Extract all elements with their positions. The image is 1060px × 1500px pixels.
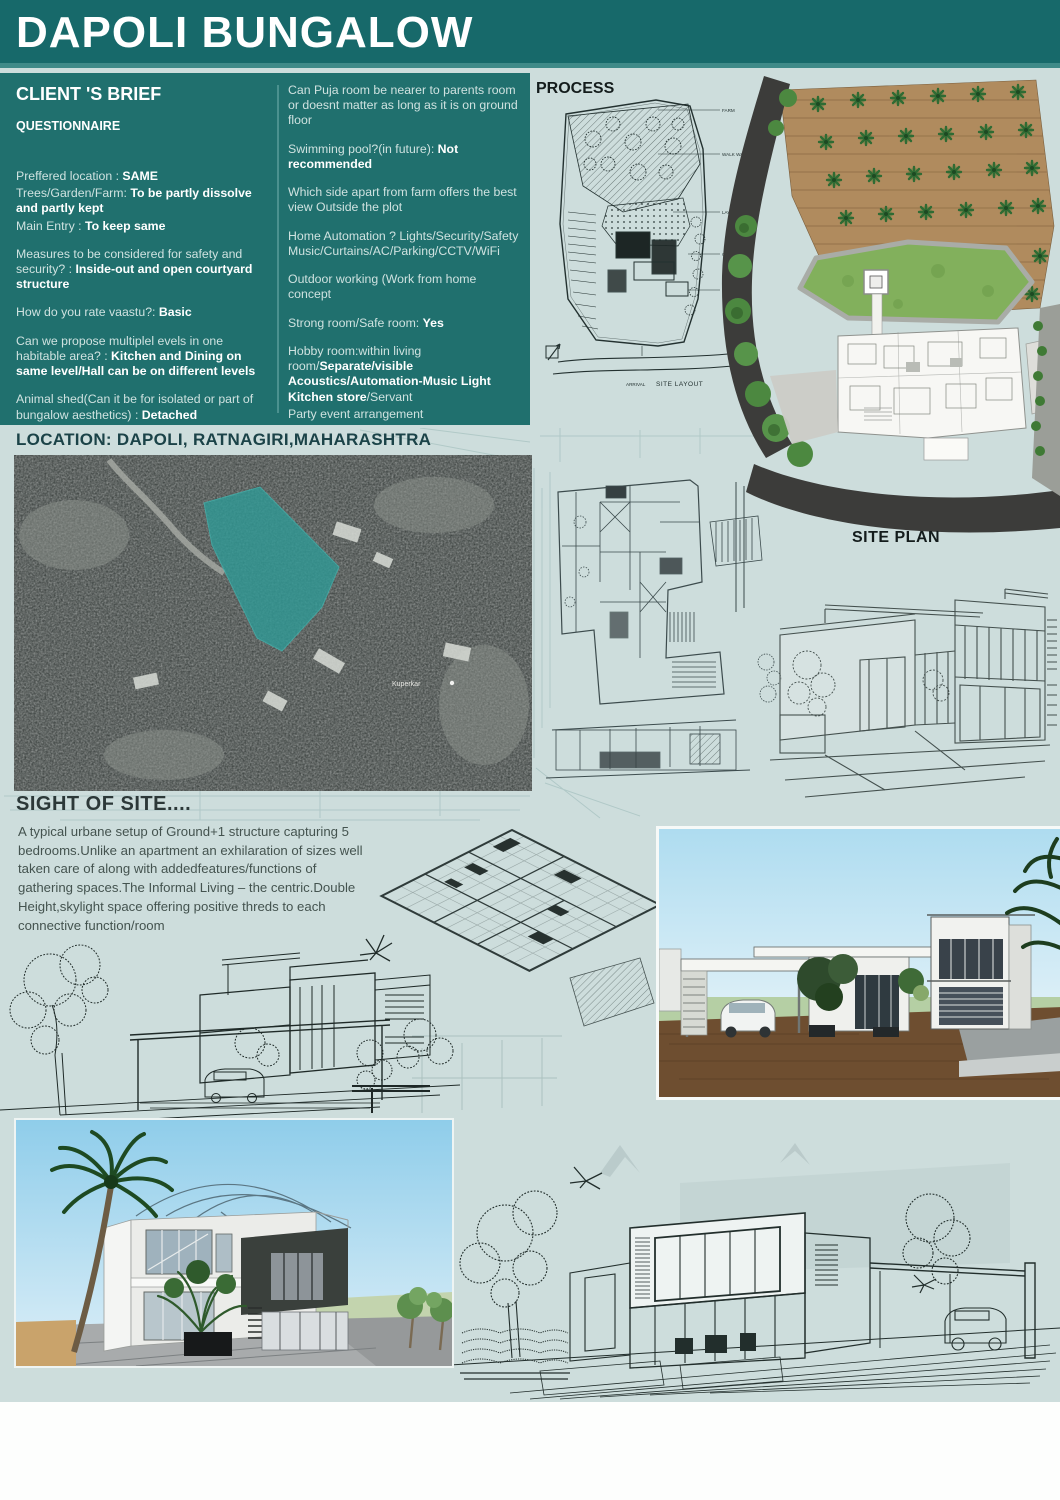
brief-item: Outdoor working (Work from home concept [288, 272, 522, 302]
sketch-render-small [0, 925, 460, 1121]
sketch-car-2 [945, 1308, 1006, 1350]
bottom-margin [0, 1402, 1060, 1500]
bungalow-footprint [838, 328, 1060, 460]
hedge-sketch [460, 1329, 570, 1379]
brief-left-column: CLIENT 'S BRIEF QUESTIONNAIRE Preffered … [16, 83, 270, 425]
exterior-render-2 [14, 1118, 454, 1368]
brief-item: Home Automation ? Lights/Security/Safety… [288, 229, 522, 259]
column-divider [277, 85, 279, 413]
brief-item: Trees/Garden/Farm: To be partly dissolve… [16, 186, 270, 216]
presentation-board: DAPOLI BUNGALOW CLIENT 'S BRIEF QUESTION… [0, 0, 1060, 1500]
gazebo [864, 270, 888, 294]
exterior-render-1 [656, 826, 1060, 1100]
sketch-render-large [450, 1143, 1060, 1401]
brief-title: CLIENT 'S BRIEF [16, 83, 270, 105]
page-title: DAPOLI BUNGALOW [0, 0, 1060, 58]
site-plan-label: SITE PLAN [852, 529, 940, 547]
brief-item: Measures to be considered for safety and… [16, 247, 270, 293]
brief-item: Preffered location : SAME [16, 169, 270, 184]
location-heading: LOCATION: DAPOLI, RATNAGIRI,MAHARASHTRA [16, 430, 431, 450]
brief-item: Which side apart from farm offers the be… [288, 185, 522, 215]
satellite-map: Kuperkar [14, 455, 532, 791]
brief-item: Strong room/Safe room: Yes [288, 316, 522, 331]
north-arrow-icon [546, 344, 560, 360]
brief-item: Main Entry : To keep same [16, 219, 270, 234]
sight-of-site-body: A typical urbane setup of Ground+1 struc… [18, 823, 366, 935]
brief-item: Can we propose multiplel evels in one ha… [16, 334, 270, 380]
client-brief-panel: CLIENT 'S BRIEF QUESTIONNAIRE Preffered … [0, 73, 530, 425]
brief-item: How do you rate vaastu?: Basic [16, 305, 270, 320]
title-bar: DAPOLI BUNGALOW [0, 0, 1060, 68]
site-plan-render [688, 76, 1060, 538]
brief-item: Dish Antenna [288, 424, 522, 425]
sight-of-site-heading: SIGHT OF SITE.... [16, 793, 191, 816]
brief-item: Can Puja room be nearer to parents room … [288, 83, 522, 129]
brief-item: Party event arrangement [288, 407, 522, 422]
svg-text:Kuperkar: Kuperkar [392, 681, 421, 688]
process-label: PROCESS [536, 80, 614, 98]
house-line-drawing [765, 565, 1060, 810]
main-house-block [927, 915, 1035, 1029]
brief-subtitle: QUESTIONNAIRE [16, 119, 270, 135]
brief-right-column: Can Puja room be nearer to parents room … [288, 83, 522, 425]
brief-item: Swimming pool?(in future): Not recommend… [288, 142, 522, 172]
svg-text:ARRIVAL: ARRIVAL [626, 382, 646, 387]
brief-item: Animal shed(Can it be for isolated or pa… [16, 392, 270, 422]
brief-item: Hobby room:within living room/Separate/v… [288, 344, 522, 405]
